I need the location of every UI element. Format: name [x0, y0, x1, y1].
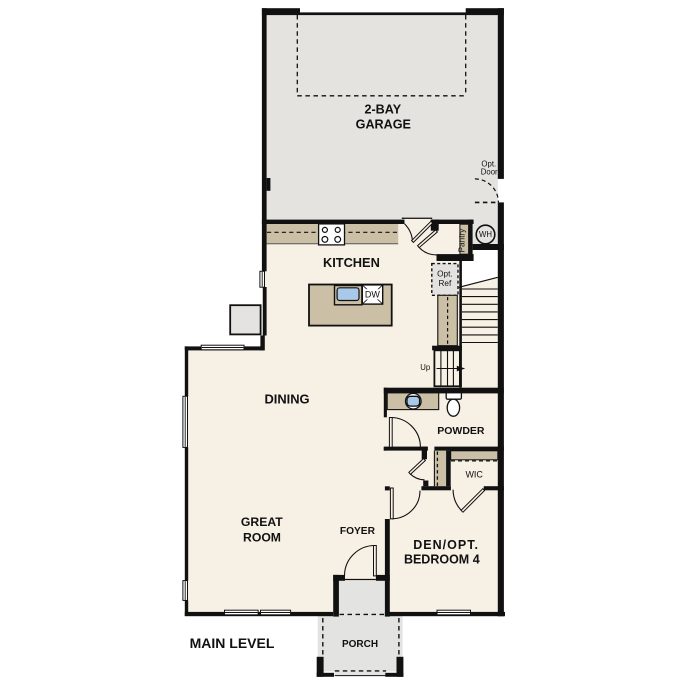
- svg-text:2-BAY: 2-BAY: [364, 102, 401, 116]
- svg-text:Ref: Ref: [439, 279, 452, 288]
- svg-text:KITCHEN: KITCHEN: [323, 255, 380, 270]
- svg-text:DINING: DINING: [264, 392, 309, 407]
- svg-text:DW: DW: [365, 290, 380, 300]
- svg-text:Door: Door: [481, 168, 498, 177]
- svg-text:WIC: WIC: [465, 469, 483, 479]
- svg-text:BEDROOM 4: BEDROOM 4: [404, 553, 480, 567]
- svg-text:ROOM: ROOM: [243, 531, 281, 545]
- svg-text:PORCH: PORCH: [342, 639, 378, 650]
- svg-text:FOYER: FOYER: [340, 526, 376, 537]
- svg-text:DEN/OPT.: DEN/OPT.: [413, 538, 479, 552]
- svg-text:Opt.: Opt.: [437, 269, 452, 278]
- svg-text:GREAT: GREAT: [241, 515, 283, 529]
- svg-text:GARAGE: GARAGE: [356, 117, 411, 131]
- svg-text:Up: Up: [420, 363, 431, 372]
- svg-text:WH: WH: [479, 230, 492, 239]
- svg-text:POWDER: POWDER: [437, 425, 485, 437]
- svg-text:Pantry: Pantry: [458, 228, 467, 253]
- svg-text:MAIN LEVEL: MAIN LEVEL: [190, 635, 275, 651]
